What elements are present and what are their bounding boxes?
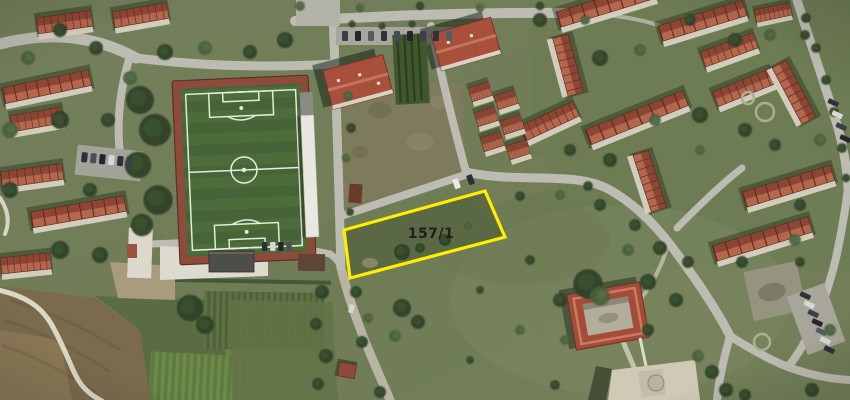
photo-vignette: [0, 0, 850, 400]
aerial-map-canvas: 157/1: [0, 0, 850, 400]
aerial-map: 157/1: [0, 0, 850, 400]
